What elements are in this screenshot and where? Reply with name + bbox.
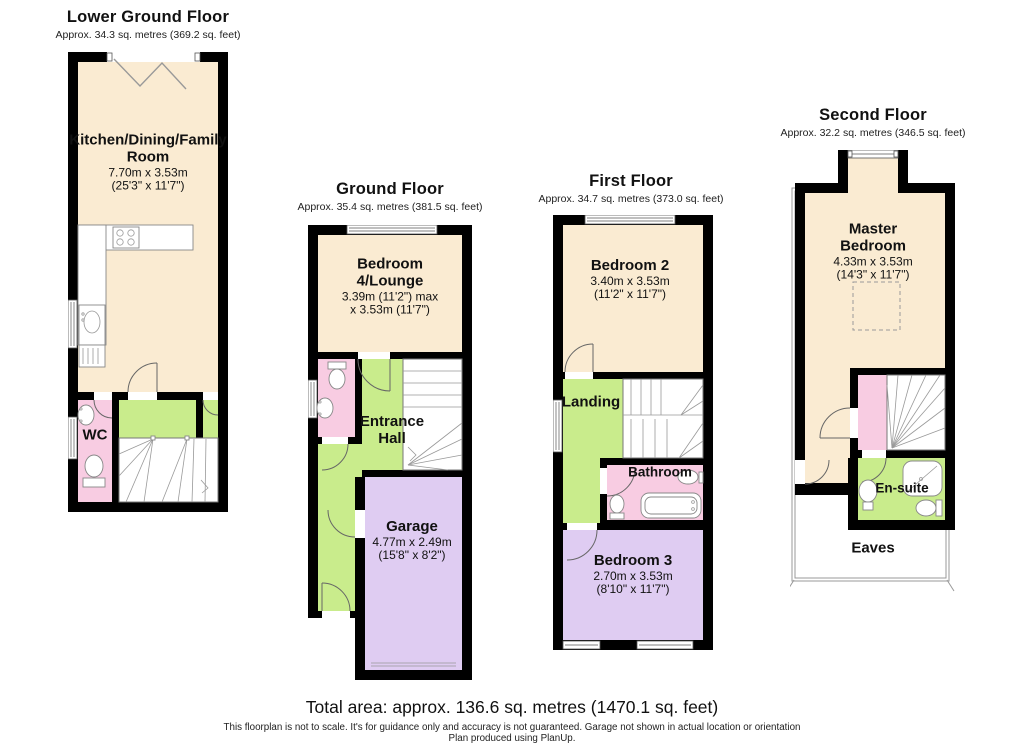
disclaimer-line2: Plan produced using PlanUp. (0, 733, 1024, 744)
first-title: First Floor (511, 172, 751, 191)
window-icon (68, 417, 77, 459)
room-landing-b (563, 458, 600, 523)
stairs-icon (403, 359, 462, 470)
first-subtitle: Approx. 34.7 sq. metres (373.0 sq. feet) (511, 193, 751, 205)
room-bedroom4 (318, 235, 462, 352)
ground-plan: Bedroom 4/Lounge 3.39m (11'2") max x 3.5… (308, 225, 472, 680)
stairs-icon (887, 375, 945, 450)
toilet-icon (83, 455, 105, 487)
window-icon (68, 300, 77, 348)
room-bedroom3 (563, 530, 703, 640)
window-icon (563, 641, 600, 649)
window-icon (637, 641, 693, 649)
toilet-icon (610, 495, 624, 519)
second-title: Second Floor (753, 106, 993, 125)
toilet-icon (328, 362, 346, 389)
ground-title: Ground Floor (270, 180, 510, 199)
second-svg (790, 150, 958, 595)
lower-ground-title: Lower Ground Floor (28, 8, 268, 27)
window-icon (553, 400, 562, 452)
ground-subtitle: Approx. 35.4 sq. metres (381.5 sq. feet) (270, 201, 510, 213)
lower-ground-svg (68, 52, 228, 512)
sink-icon (79, 305, 105, 367)
wall-bottom-left (795, 483, 858, 495)
room-garage (365, 477, 462, 670)
basin-icon (78, 405, 94, 425)
room-hall-strip (318, 444, 355, 611)
first-svg (553, 215, 713, 650)
basin-icon (678, 470, 703, 484)
lower-ground-subtitle: Approx. 34.3 sq. metres (369.2 sq. feet) (28, 29, 268, 41)
window-icon (585, 215, 675, 224)
room-bedroom2 (563, 225, 703, 372)
stair-lobby (858, 375, 887, 450)
lower-ground-plan: Kitchen/Dining/Family Room 7.70m x 3.53m… (68, 52, 228, 512)
room-master-notch (848, 158, 898, 198)
first-plan: Bedroom 2 3.40m x 3.53m (11'2" x 11'7") … (553, 215, 713, 650)
toilet-icon (916, 500, 942, 516)
room-landing-a (563, 379, 623, 458)
second-plan: Master Bedroom 4.33m x 3.53m (14'3" x 11… (790, 150, 958, 595)
window-icon (347, 225, 437, 234)
stairs-icon (623, 379, 703, 458)
ground-svg (308, 225, 472, 680)
room-hall-join (355, 444, 362, 477)
window-icon (848, 150, 898, 158)
disclaimer-line1: This floorplan is not to scale. It's for… (0, 722, 1024, 733)
total-area-text: Total area: approx. 136.6 sq. metres (14… (0, 697, 1024, 718)
stairs-icon (119, 436, 218, 502)
floorplan-page: Lower Ground Floor Approx. 34.3 sq. metr… (0, 0, 1024, 745)
basin-icon (317, 398, 333, 418)
bathtub-icon (641, 493, 701, 518)
wall-stub (196, 400, 203, 442)
shower-icon (903, 461, 942, 496)
second-subtitle: Approx. 32.2 sq. metres (346.5 sq. feet) (753, 127, 993, 139)
window-icon (308, 380, 317, 418)
wall-stair-top (850, 368, 945, 375)
